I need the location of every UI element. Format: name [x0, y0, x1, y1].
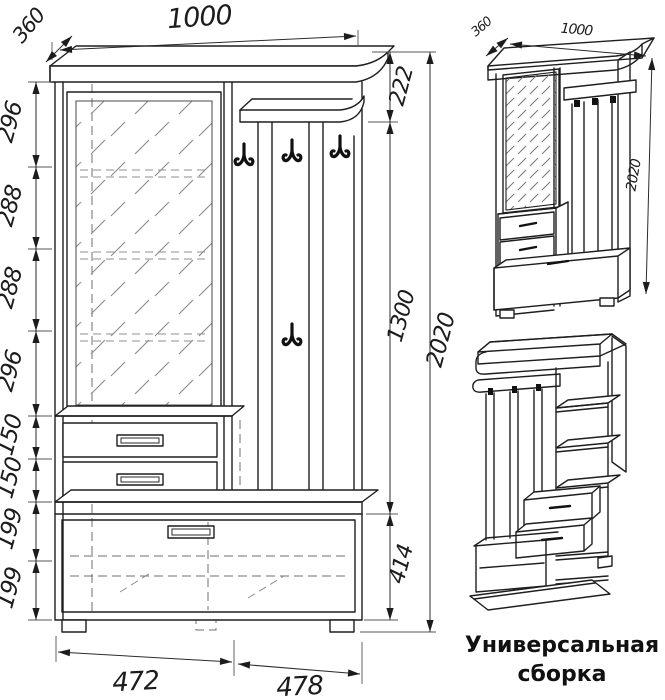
dim-bottom-right: 478 — [276, 671, 325, 700]
iso-dim-width: 1000 — [560, 21, 594, 40]
drawer-unit — [55, 406, 244, 502]
dim-left-5: 150 — [0, 412, 28, 459]
dim-depth: 360 — [8, 3, 51, 47]
caption-line-2: сборка — [517, 662, 606, 687]
drawer-handle — [117, 435, 163, 446]
drawer-handle — [117, 474, 163, 485]
dim-total-height: 2020 — [422, 310, 461, 370]
iso-dim-depth: 360 — [469, 14, 496, 40]
mirror-door — [67, 92, 221, 414]
dim-right-2: 1300 — [383, 288, 421, 345]
flap-handle — [168, 526, 214, 538]
dim-left-7: 199 — [0, 506, 28, 553]
iso-dim-height: 2020 — [623, 157, 644, 192]
dim-left-2: 288 — [0, 183, 28, 230]
front-view: 1000 360 296 288 288 296 150 150 199 199 — [0, 0, 461, 700]
iso-view-front: 360 1000 2020 — [469, 14, 654, 318]
dim-left-3: 288 — [0, 265, 28, 312]
dim-left-4: 296 — [0, 348, 28, 395]
technical-drawing-page: 1000 360 296 288 288 296 150 150 199 199 — [0, 0, 665, 700]
dim-left-1: 296 — [0, 99, 28, 146]
caption-line-1: Универсальная — [465, 633, 659, 658]
foot — [330, 620, 354, 632]
iso-view-open — [470, 334, 626, 610]
hallway-unit-blueprint: 1000 360 296 288 288 296 150 150 199 199 — [0, 0, 665, 700]
hook-shelf — [240, 96, 364, 122]
shoe-cabinet — [55, 490, 378, 632]
dimensions: 1000 360 296 288 288 296 150 150 199 199 — [0, 0, 461, 700]
dim-left-6: 150 — [0, 455, 28, 502]
foot — [62, 620, 86, 632]
dim-left-8: 199 — [0, 565, 28, 612]
coat-hooks — [235, 136, 349, 345]
dim-bottom-left: 472 — [112, 666, 160, 698]
top-canopy — [50, 46, 394, 82]
caption: Универсальная сборка — [465, 633, 659, 687]
dim-top-width: 1000 — [166, 0, 233, 35]
coat-hook-panel — [258, 122, 323, 502]
